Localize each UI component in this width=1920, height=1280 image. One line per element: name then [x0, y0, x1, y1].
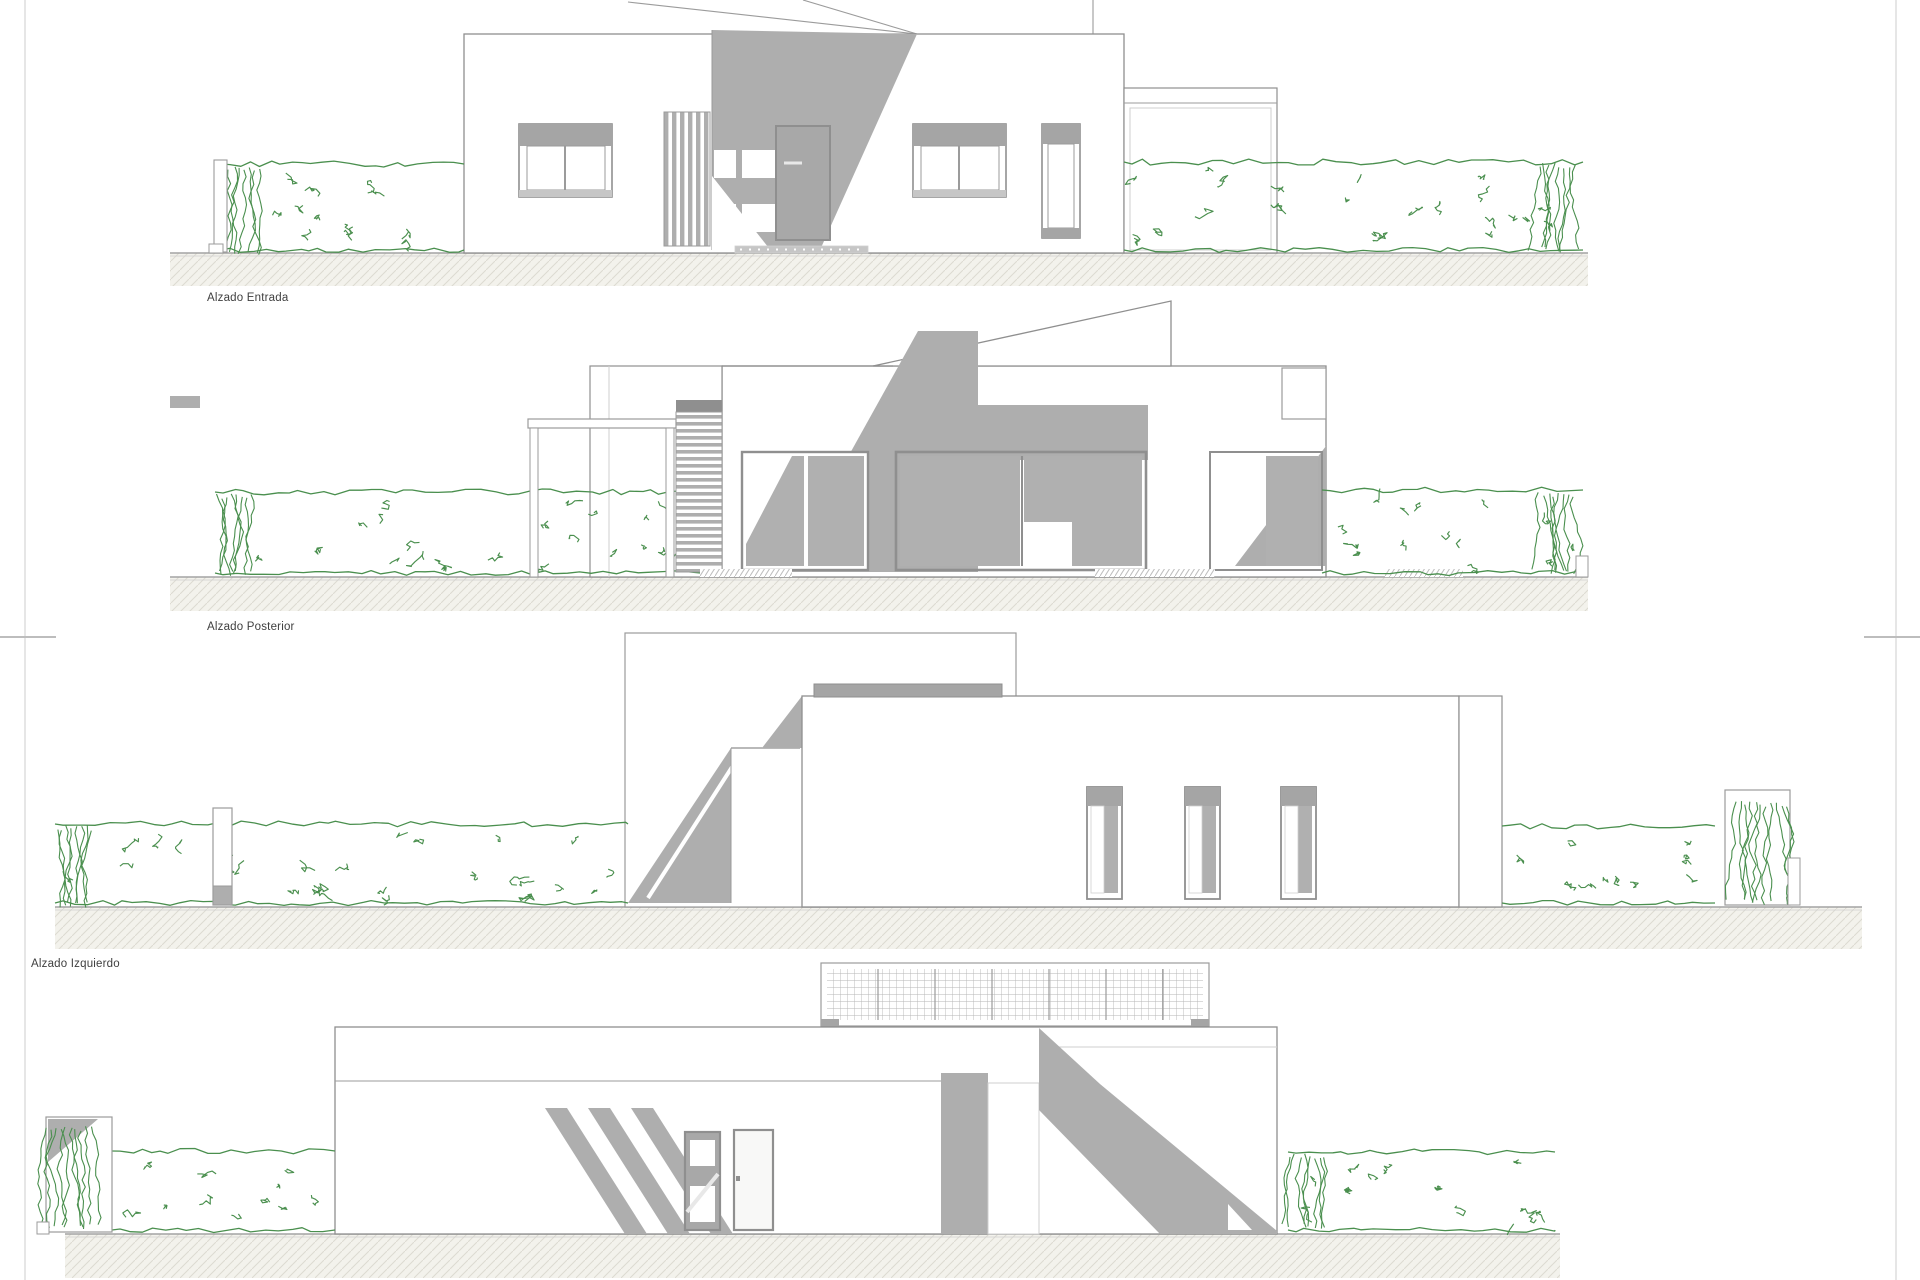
trellis-mesh	[827, 969, 1203, 1020]
roller-band	[821, 1019, 839, 1026]
dark-band	[676, 400, 722, 412]
wall-shape	[1459, 696, 1502, 907]
roller-band	[1042, 228, 1080, 238]
wall-shape	[1788, 858, 1800, 905]
slat-screen	[676, 412, 722, 572]
roller-band	[913, 124, 1006, 146]
ground-hatch	[170, 577, 1588, 611]
door	[776, 126, 830, 240]
dark-band	[736, 1176, 740, 1181]
shadow-shape	[213, 886, 232, 905]
highlight-shape	[1048, 144, 1074, 228]
roller-band	[814, 684, 1002, 697]
glazing-panel	[1202, 806, 1216, 893]
glazing-panel	[1104, 806, 1118, 893]
wall-shape	[1124, 88, 1277, 253]
glazing-panel	[808, 456, 864, 566]
roller-band	[1185, 787, 1220, 806]
highlight-shape	[690, 1140, 715, 1166]
wall-shape	[214, 160, 227, 252]
wall-shape	[1282, 368, 1326, 419]
paving-hatch	[700, 569, 792, 577]
wall-shape	[209, 244, 223, 253]
highlight-shape	[1285, 806, 1298, 893]
louver-screen	[664, 112, 710, 246]
ground-hatch	[65, 1234, 1560, 1278]
roller-band	[1087, 787, 1122, 806]
wall-shape	[666, 428, 674, 577]
glazing-panel	[900, 456, 1020, 566]
wall-shape	[988, 1083, 1039, 1234]
drawing-sheet: Alzado Entrada Alzado Posterior Alzado I…	[0, 0, 1920, 1280]
label-alzado-posterior: Alzado Posterior	[207, 621, 295, 633]
highlight-shape	[714, 150, 736, 178]
wall-shape	[802, 696, 1459, 907]
shadow-shape	[941, 1073, 988, 1234]
label-alzado-izquierdo: Alzado Izquierdo	[31, 958, 120, 970]
roller-band	[1191, 1019, 1209, 1026]
paving-hatch	[1095, 569, 1215, 577]
shadow-shape	[170, 396, 200, 408]
ground-hatch	[170, 253, 1588, 286]
glazing-panel	[1266, 456, 1318, 566]
roller-band	[1281, 787, 1316, 806]
highlight-shape	[1024, 522, 1072, 566]
highlight-shape	[1189, 806, 1202, 893]
sill	[519, 190, 612, 197]
roller-band	[519, 124, 612, 146]
glazing-panel	[1298, 806, 1312, 893]
wall-shape	[530, 428, 538, 577]
sill	[913, 190, 1006, 197]
wall-shape	[528, 419, 676, 428]
ground-hatch	[55, 907, 1862, 949]
label-alzado-entrada: Alzado Entrada	[207, 292, 289, 304]
roller-band	[1042, 124, 1080, 144]
wall-shape	[1576, 556, 1588, 577]
elevations-canvas: Alzado Entrada Alzado Posterior Alzado I…	[0, 0, 1920, 1280]
wall-shape	[37, 1222, 49, 1234]
highlight-shape	[1091, 806, 1104, 893]
